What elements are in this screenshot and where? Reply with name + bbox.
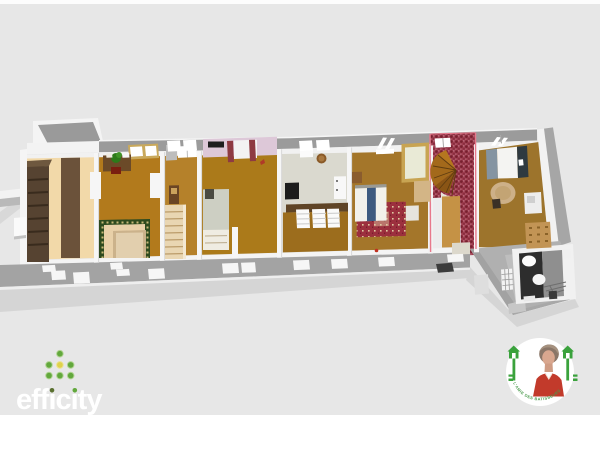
svg-text:efficity: efficity	[16, 384, 102, 416]
svg-text:l'amie: l'amie	[518, 365, 532, 371]
